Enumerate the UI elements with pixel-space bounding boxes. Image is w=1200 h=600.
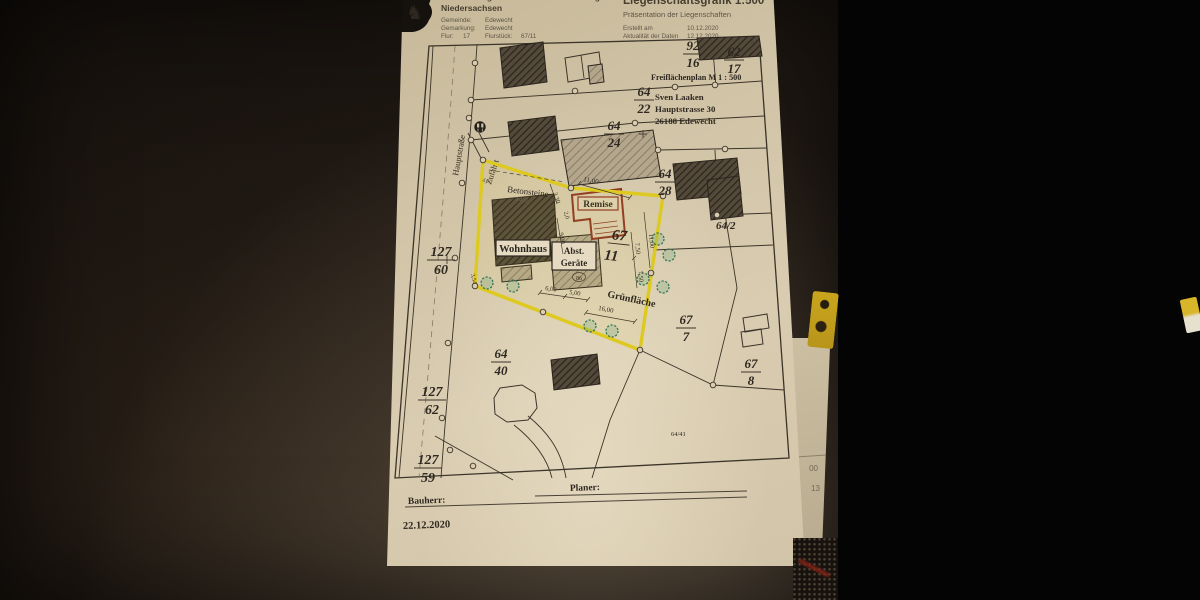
bauherr-label: Bauherr: bbox=[408, 496, 446, 507]
cadastral-sheet: ♞ Vermessungs- und Katasterverwaltung Ni… bbox=[385, 0, 817, 566]
svg-text:Hauptstraße: Hauptstraße bbox=[450, 134, 467, 176]
svg-text:127: 127 bbox=[418, 453, 440, 468]
table-corner-shadow bbox=[793, 538, 838, 600]
agency-logo: ♞ bbox=[401, 0, 432, 32]
owner-name: Sven Laaken bbox=[655, 92, 704, 102]
street-name-label: Hauptstraße bbox=[450, 134, 467, 176]
plan-title: Freiflächenplan M 1 : 500 bbox=[651, 73, 741, 82]
map-symbol-icon bbox=[474, 121, 486, 133]
svg-text:127: 127 bbox=[431, 245, 453, 260]
svg-text:60: 60 bbox=[434, 263, 448, 278]
agency-name-line1: Vermessungs- und Katasterverwaltung bbox=[441, 0, 600, 2]
svg-text:62: 62 bbox=[425, 403, 439, 418]
shed-label-line1: Abst. bbox=[564, 246, 584, 256]
dim-right: 11,00 bbox=[647, 233, 655, 248]
building-parcel-64-24 bbox=[508, 116, 559, 156]
gemeinde-value: Edewecht bbox=[485, 17, 513, 24]
shed-label-line2: Geräte bbox=[561, 258, 587, 268]
gemarkung-label: Gemarkung: bbox=[441, 25, 476, 32]
garage-outline bbox=[565, 52, 604, 84]
shed-label-box: Abst. Geräte bbox=[552, 242, 596, 270]
flurstueck-value: 67/11 bbox=[521, 33, 537, 40]
svg-text:127: 127 bbox=[422, 385, 444, 400]
sheet2-number-1: 00 bbox=[809, 464, 818, 473]
svg-text:28: 28 bbox=[658, 183, 673, 198]
document-subtitle: Präsentation der Liegenschaften bbox=[623, 10, 731, 19]
footer-date: 22.12.2020 bbox=[403, 519, 451, 532]
photo-of-cadastral-document: 00 13 ♞ Vermessungs- und Katasterverwalt… bbox=[0, 0, 1200, 600]
svg-text:64: 64 bbox=[608, 118, 622, 133]
parcel-64-28: 64 28 bbox=[655, 166, 675, 198]
dim-750a: 7,50 bbox=[633, 242, 641, 254]
svg-text:59: 59 bbox=[421, 471, 435, 486]
owner-address-block: Sven Laaken Hauptstrasse 30 26188 Edewec… bbox=[655, 92, 716, 126]
svg-text:64: 64 bbox=[495, 346, 509, 361]
footer-block: Planer: Bauherr: 22.12.2020 bbox=[403, 483, 747, 532]
svg-text:64: 64 bbox=[638, 84, 652, 99]
svg-text:7: 7 bbox=[683, 329, 690, 344]
parcel-64-40: 64 40 bbox=[491, 346, 511, 378]
gemeinde-label: Gemeinde: bbox=[441, 17, 472, 24]
svg-text:40: 40 bbox=[494, 363, 509, 378]
owner-street: Hauptstrasse 30 bbox=[655, 104, 716, 114]
dim-354: 3,54 bbox=[469, 273, 477, 285]
flurstueck-label: Flurstück: bbox=[485, 33, 513, 40]
red-streak bbox=[798, 559, 830, 578]
parcel-127-59: 127 59 bbox=[414, 453, 442, 486]
parcel-67-8: 67 8 bbox=[741, 356, 761, 388]
flur-label: Flur: bbox=[441, 33, 454, 40]
parcel-64-41: 64/41 bbox=[671, 431, 686, 438]
wohnhaus-label: Wohnhaus bbox=[499, 244, 547, 255]
svg-text:8: 8 bbox=[748, 373, 755, 388]
parcel-64-2x: 64/2 bbox=[716, 220, 736, 232]
sheet2-number-2: 13 bbox=[811, 484, 820, 493]
parcel-127-62: 127 62 bbox=[418, 385, 446, 418]
gemarkung-value: Edewecht bbox=[485, 25, 513, 32]
parcel-67-7: 67 7 bbox=[676, 312, 696, 344]
updated-label: Aktualität der Daten bbox=[623, 33, 679, 40]
yellow-edge-mark bbox=[1180, 297, 1200, 334]
svg-text:22: 22 bbox=[637, 101, 652, 116]
owner-city: 26188 Edewecht bbox=[655, 116, 716, 126]
svg-text:67: 67 bbox=[680, 312, 694, 327]
svg-text:62: 62 bbox=[728, 44, 742, 59]
dim-750b: 7,50 bbox=[636, 270, 644, 282]
wohnhaus-label-box: Wohnhaus bbox=[496, 240, 550, 256]
point-86: 86 bbox=[576, 276, 582, 282]
parcel-127-60: 127 60 bbox=[427, 245, 455, 278]
svg-text:92: 92 bbox=[687, 38, 701, 53]
octagon-structure bbox=[494, 385, 537, 422]
svg-text:24: 24 bbox=[607, 135, 622, 150]
document-title: Liegenschaftsgrafik 1:500 bbox=[623, 0, 764, 7]
svg-text:67: 67 bbox=[611, 227, 628, 245]
agency-name-line2: Niedersachsen bbox=[441, 3, 502, 13]
svg-text:11: 11 bbox=[603, 248, 619, 265]
building-parcel-64-28-b bbox=[707, 176, 743, 220]
building-parcel-92-16 bbox=[500, 42, 547, 88]
created-value: 10.12.2020 bbox=[687, 25, 719, 32]
svg-text:67: 67 bbox=[745, 356, 759, 371]
planer-label: Planer: bbox=[570, 483, 600, 494]
svg-text:16: 16 bbox=[687, 55, 701, 70]
lower-saxony-horse-icon: ♞ bbox=[406, 3, 423, 24]
building-parcel-64-40 bbox=[551, 354, 600, 390]
svg-text:64: 64 bbox=[659, 166, 673, 181]
cadastral-map: ♞ Vermessungs- und Katasterverwaltung Ni… bbox=[385, 0, 817, 566]
flur-value: 17 bbox=[463, 33, 471, 40]
building-parcel-67-8-b bbox=[741, 329, 763, 347]
created-label: Erstellt am bbox=[623, 25, 653, 32]
